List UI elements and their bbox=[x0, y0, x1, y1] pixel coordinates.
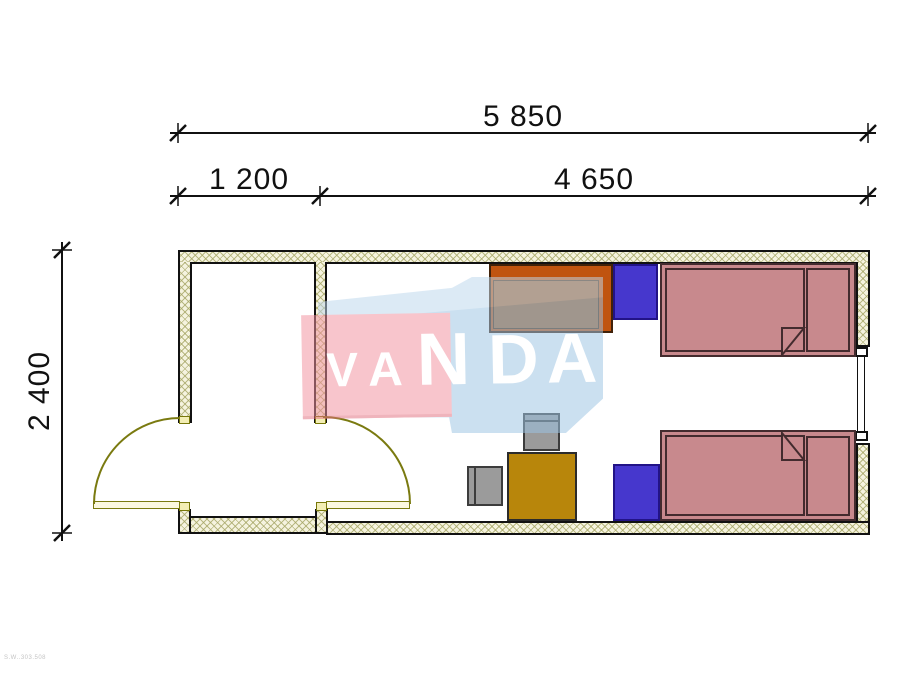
dimension-and-door-arc-layer bbox=[0, 0, 924, 700]
floor-plan-canvas: 5 850 1 200 4 650 2 400 bbox=[0, 0, 924, 700]
dimension-tick-crosses bbox=[52, 123, 868, 533]
entry-door-swing-arc bbox=[94, 418, 180, 504]
interior-door-swing-arc bbox=[323, 417, 410, 504]
